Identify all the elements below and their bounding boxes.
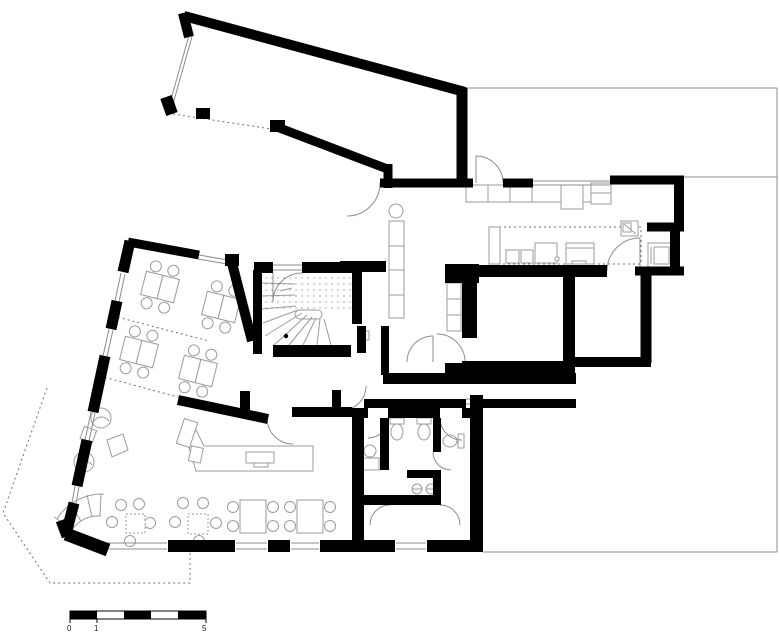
scale-label-0: 0 xyxy=(67,624,72,633)
scale-bar: 0 1 5 xyxy=(67,611,207,633)
toilet-icon xyxy=(417,418,431,440)
desk-and-chairs-icon xyxy=(117,259,244,399)
kitchen-counter xyxy=(466,183,611,209)
scale-label-5: 5 xyxy=(202,624,207,633)
kitchen-island-icon xyxy=(489,227,594,264)
scale-label-1: 1 xyxy=(94,624,99,633)
bar-counter-icon xyxy=(176,418,313,471)
pantry-cabinet xyxy=(447,283,461,331)
wc-fixtures xyxy=(355,418,464,494)
toilet-icon xyxy=(443,434,464,448)
door-arc-icon xyxy=(267,156,640,525)
floor-plan-page: 0 1 5 xyxy=(0,0,780,640)
toilet-icon xyxy=(390,418,404,440)
sink-icon xyxy=(412,484,436,494)
floor-plan-drawing: 0 1 5 xyxy=(0,0,780,640)
cafe-table-icon xyxy=(107,498,336,547)
winder-stair-icon xyxy=(262,275,351,345)
property-boundary xyxy=(463,88,777,552)
